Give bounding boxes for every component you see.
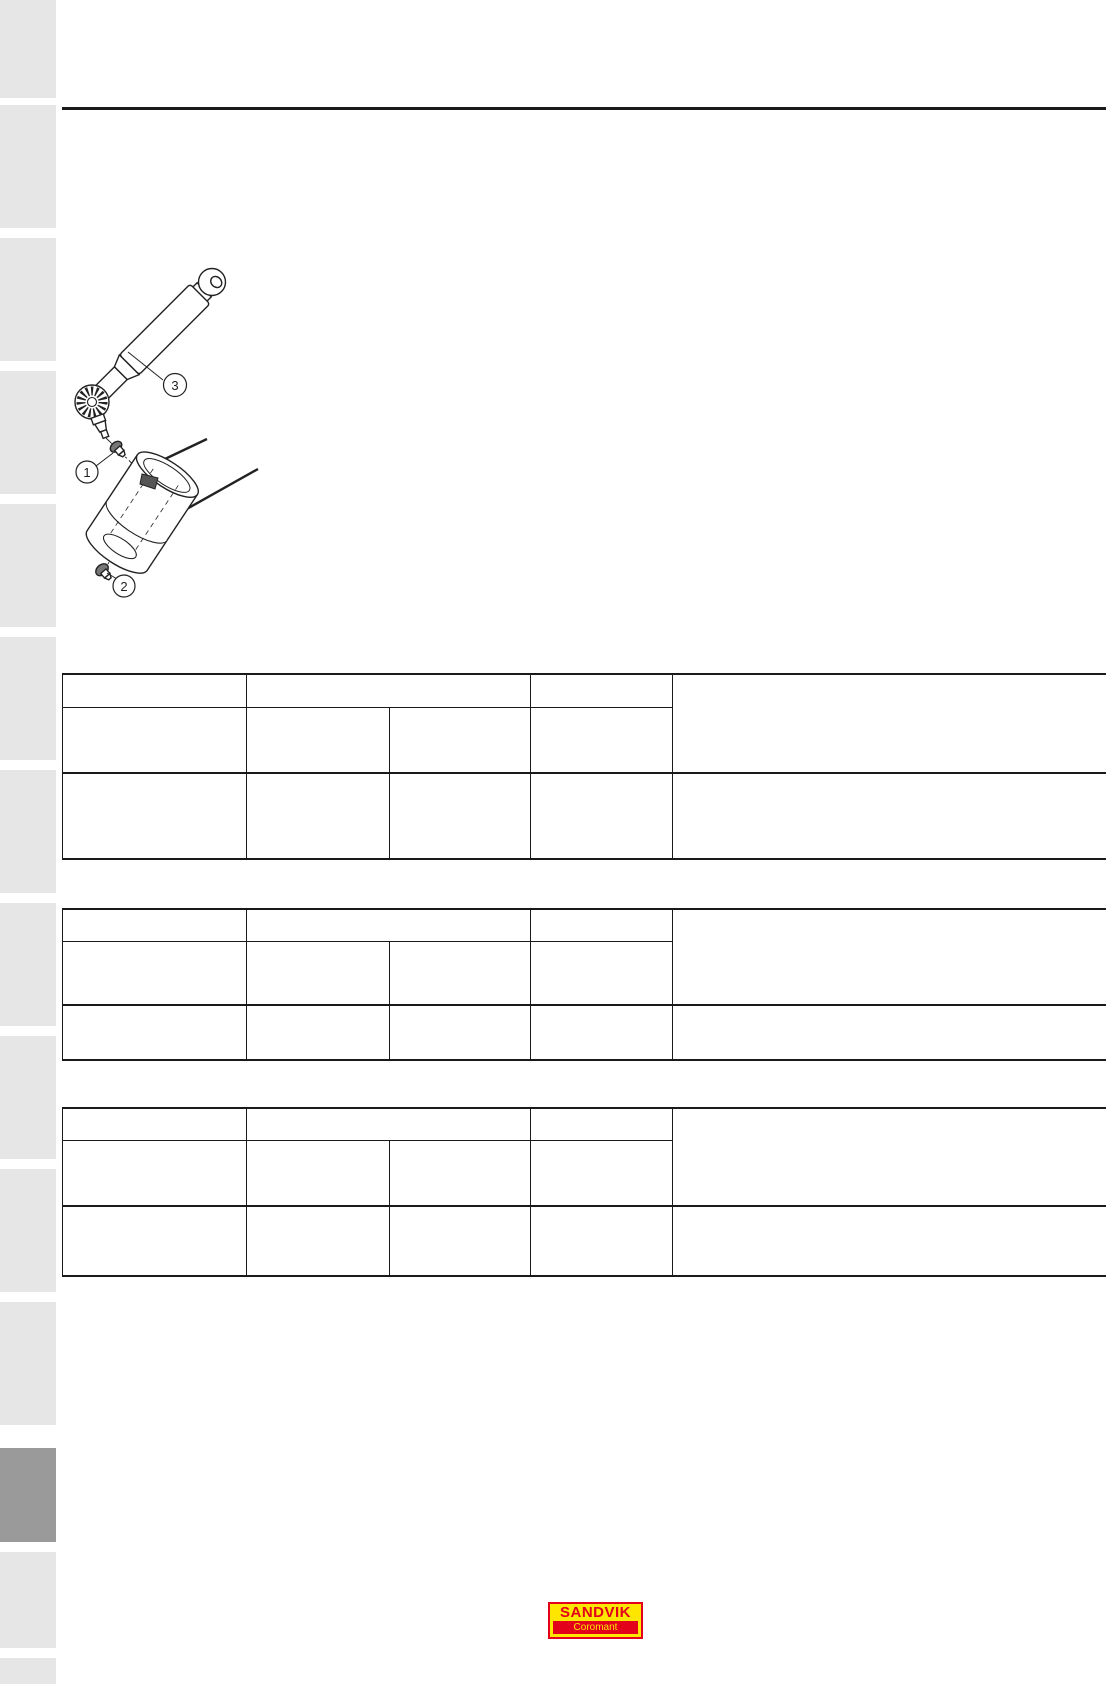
table-cell bbox=[531, 942, 673, 1004]
table-cell bbox=[390, 1006, 531, 1059]
table-cell bbox=[63, 1207, 247, 1275]
table-cell bbox=[673, 942, 1106, 1004]
table-cell bbox=[673, 1109, 1106, 1141]
table-cell bbox=[531, 708, 673, 772]
table-cell bbox=[531, 910, 673, 942]
table-cell bbox=[531, 1207, 673, 1275]
sidebar-block bbox=[0, 238, 56, 361]
sandvik-coromant-logo: SANDVIK Coromant bbox=[548, 1602, 643, 1639]
table-cell bbox=[673, 708, 1106, 772]
table-cell bbox=[63, 675, 247, 708]
table-cell bbox=[63, 910, 247, 942]
sidebar-block-active bbox=[0, 1448, 56, 1542]
table-cell bbox=[390, 1141, 531, 1205]
table-cell bbox=[531, 1109, 673, 1141]
sidebar-block bbox=[0, 0, 56, 98]
sidebar-block bbox=[0, 105, 56, 228]
sidebar-block bbox=[0, 1658, 56, 1684]
sidebar-block bbox=[0, 1302, 56, 1425]
callout-1-label: 1 bbox=[83, 465, 90, 480]
table-cell bbox=[531, 1006, 673, 1059]
table-cell bbox=[247, 1006, 390, 1059]
exploded-view-figure: 3 1 2 bbox=[60, 250, 290, 600]
torque-wrench bbox=[92, 263, 231, 402]
logo-division-text: Coromant bbox=[553, 1621, 638, 1634]
table-cell bbox=[247, 708, 390, 772]
spare-parts-table-1 bbox=[62, 673, 1106, 860]
spare-parts-table-3 bbox=[62, 1107, 1106, 1277]
sidebar-block bbox=[0, 1552, 56, 1648]
table-cell bbox=[63, 1141, 247, 1205]
table-cell bbox=[531, 675, 673, 708]
table-cell bbox=[390, 774, 531, 858]
sidebar-block bbox=[0, 371, 56, 494]
table-cell bbox=[247, 1109, 531, 1141]
callout-1: 1 bbox=[76, 453, 113, 483]
sidebar-block bbox=[0, 1036, 56, 1159]
table-cell bbox=[531, 1141, 673, 1205]
table-cell bbox=[63, 708, 247, 772]
table-cell bbox=[63, 1109, 247, 1141]
table-cell bbox=[247, 1207, 390, 1275]
table-cell bbox=[673, 1006, 1106, 1059]
callout-2-label: 2 bbox=[120, 579, 127, 594]
table-cell bbox=[390, 1207, 531, 1275]
callout-3-label: 3 bbox=[171, 378, 178, 393]
sidebar-block bbox=[0, 1169, 56, 1292]
table-cell bbox=[247, 910, 531, 942]
table-cell bbox=[247, 1141, 390, 1205]
sidebar-block bbox=[0, 770, 56, 893]
table-cell bbox=[390, 942, 531, 1004]
drive-tip bbox=[91, 414, 111, 440]
sidebar-block bbox=[0, 903, 56, 1026]
table-cell bbox=[531, 774, 673, 858]
table-cell bbox=[63, 774, 247, 858]
clamping-screw-2 bbox=[93, 561, 115, 583]
table-cell bbox=[673, 675, 1106, 708]
section-rule bbox=[62, 107, 1106, 110]
table-cell bbox=[63, 1006, 247, 1059]
catalog-page: 3 1 2 bbox=[0, 0, 1106, 1684]
spare-parts-table-2 bbox=[62, 908, 1106, 1061]
table-cell bbox=[247, 675, 531, 708]
sidebar-block bbox=[0, 637, 56, 760]
table-cell bbox=[673, 1141, 1106, 1205]
sidebar-block bbox=[0, 504, 56, 627]
table-cell bbox=[63, 942, 247, 1004]
table-cell bbox=[247, 942, 390, 1004]
table-cell bbox=[673, 1207, 1106, 1275]
table-cell bbox=[390, 708, 531, 772]
logo-brand-text: SANDVIK bbox=[550, 1604, 641, 1621]
table-cell bbox=[247, 774, 390, 858]
table-cell bbox=[673, 910, 1106, 942]
table-cell bbox=[673, 774, 1106, 858]
